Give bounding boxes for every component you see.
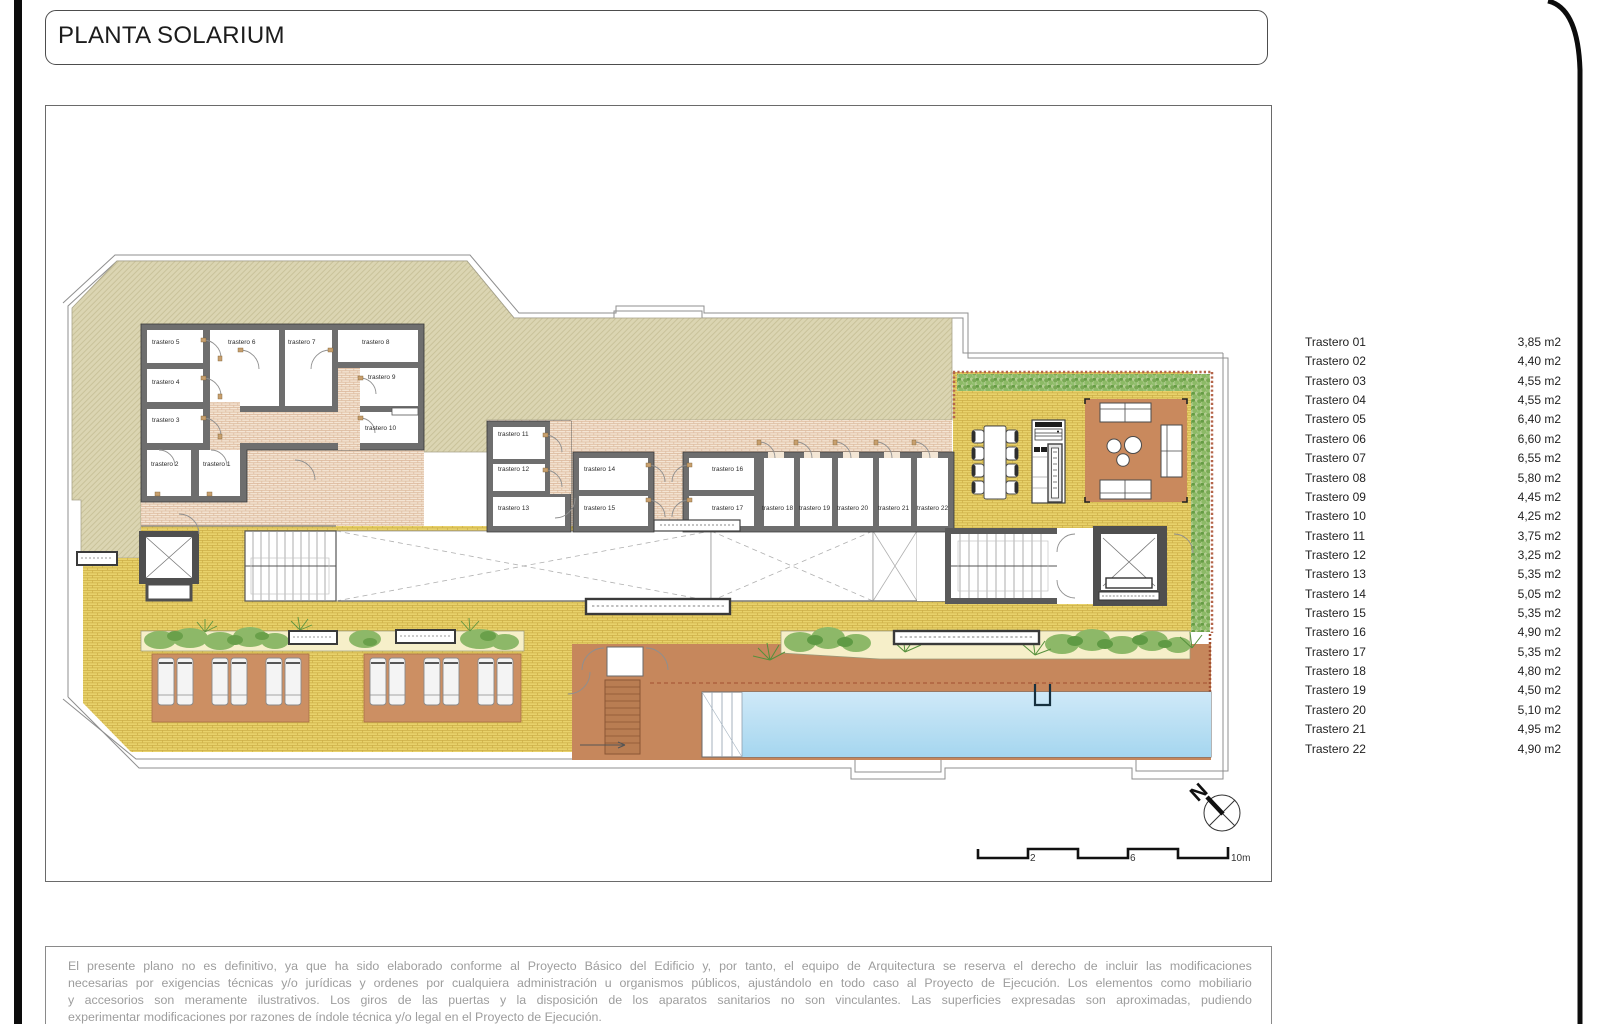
- svg-text:trastero 14: trastero 14: [584, 466, 615, 473]
- svg-text:trastero 8: trastero 8: [362, 339, 390, 346]
- svg-text:10m: 10m: [1231, 853, 1250, 864]
- svg-text:6: 6: [1130, 853, 1136, 864]
- svg-text:trastero 10: trastero 10: [365, 425, 396, 432]
- svg-text:trastero 9: trastero 9: [368, 374, 396, 381]
- svg-text:trastero 12: trastero 12: [498, 466, 529, 473]
- svg-text:trastero 4: trastero 4: [152, 379, 180, 386]
- svg-text:trastero 3: trastero 3: [152, 417, 180, 424]
- svg-text:trastero 11: trastero 11: [498, 431, 529, 438]
- svg-text:trastero 1: trastero 1: [203, 461, 231, 468]
- svg-text:trastero 16: trastero 16: [712, 466, 743, 473]
- svg-text:trastero 6: trastero 6: [228, 339, 256, 346]
- svg-text:trastero 21: trastero 21: [878, 505, 909, 512]
- svg-text:trastero 7: trastero 7: [288, 339, 316, 346]
- svg-text:trastero 20: trastero 20: [837, 505, 868, 512]
- svg-text:2: 2: [1030, 853, 1036, 864]
- svg-text:trastero 5: trastero 5: [152, 339, 180, 346]
- svg-text:trastero 19: trastero 19: [799, 505, 830, 512]
- svg-text:trastero 17: trastero 17: [712, 505, 743, 512]
- svg-text:trastero 22: trastero 22: [917, 505, 948, 512]
- svg-text:trastero 15: trastero 15: [584, 505, 615, 512]
- svg-text:trastero 2: trastero 2: [151, 461, 179, 468]
- svg-text:trastero 13: trastero 13: [498, 505, 529, 512]
- svg-text:trastero 18: trastero 18: [762, 505, 793, 512]
- svg-text:N: N: [1186, 779, 1213, 806]
